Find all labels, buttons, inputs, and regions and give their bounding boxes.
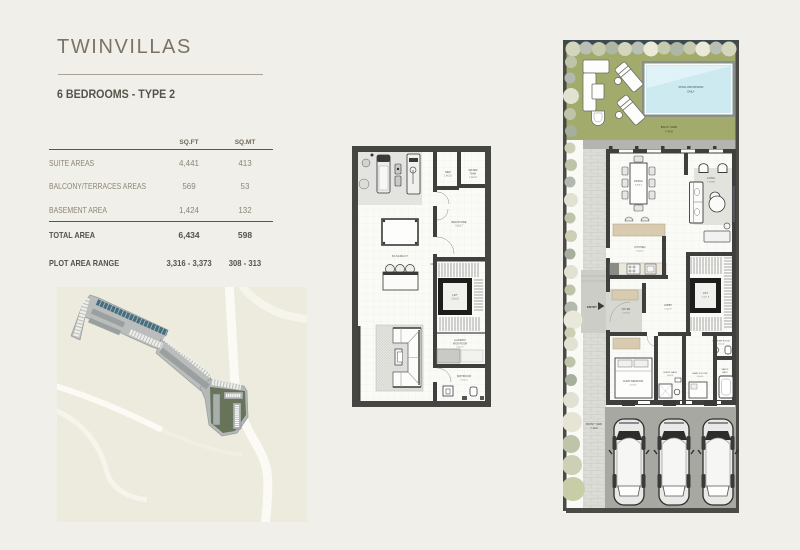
svg-text:BACK YARD: BACK YARD	[661, 125, 677, 129]
svg-text:2.1x2.6: 2.1x2.6	[697, 376, 704, 378]
svg-text:5' WIDE: 5' WIDE	[707, 181, 715, 183]
svg-text:WATER: WATER	[468, 168, 477, 172]
svg-text:UP: UP	[430, 263, 434, 266]
svg-text:7' AVG: 7' AVG	[665, 130, 673, 134]
svg-text:BASEMENT: BASEMENT	[392, 254, 409, 258]
svg-text:ONLY: ONLY	[687, 90, 695, 94]
svg-text:FRONT YARD: FRONT YARD	[586, 422, 603, 426]
svg-text:DINING: DINING	[634, 180, 643, 183]
svg-text:IRON ROOM: IRON ROOM	[453, 342, 467, 345]
svg-text:LIFT: LIFT	[452, 293, 458, 297]
svg-text:MEP: MEP	[445, 170, 451, 174]
svg-text:LIVING: LIVING	[707, 177, 715, 180]
svg-text:7' AVG: 7' AVG	[590, 427, 597, 430]
svg-text:BED/STORE: BED/STORE	[452, 220, 467, 224]
svg-text:GUEST BEDROOM: GUEST BEDROOM	[623, 381, 643, 383]
svg-text:3.8x8.2: 3.8x8.2	[635, 184, 643, 186]
svg-text:BATHROOM: BATHROOM	[457, 375, 471, 378]
svg-text:2.0x1.8: 2.0x1.8	[702, 297, 710, 299]
svg-text:3.6x4.1: 3.6x4.1	[636, 250, 644, 252]
svg-text:1.5x1.5: 1.5x1.5	[718, 344, 725, 346]
svg-text:POOL PROVISION: POOL PROVISION	[679, 85, 704, 89]
svg-text:2.5x2.8: 2.5x2.8	[622, 312, 630, 314]
svg-text:LOBBY: LOBBY	[664, 304, 673, 307]
svg-text:MAID'S: MAID'S	[722, 368, 729, 371]
svg-text:GUEST BATH: GUEST BATH	[663, 371, 677, 374]
svg-text:3.0x1.7: 3.0x1.7	[456, 347, 464, 349]
svg-text:3.7x3.7: 3.7x3.7	[630, 384, 638, 386]
svg-text:BATH: BATH	[722, 371, 728, 374]
svg-text:3.3x3.7: 3.3x3.7	[455, 226, 463, 228]
svg-text:KITCHEN: KITCHEN	[635, 246, 646, 249]
svg-text:MAID'S ROOM: MAID'S ROOM	[693, 372, 708, 375]
svg-text:2.0x1.8: 2.0x1.8	[451, 299, 459, 301]
svg-text:FOYER: FOYER	[622, 308, 631, 311]
svg-text:1.6x2.6: 1.6x2.6	[667, 375, 674, 377]
svg-text:TANK: TANK	[470, 172, 477, 176]
svg-text:1.4x1.0: 1.4x1.0	[444, 176, 452, 178]
svg-text:1.4x1.0: 1.4x1.0	[469, 177, 477, 179]
svg-text:2.5x2.0: 2.5x2.0	[460, 379, 468, 381]
svg-text:LIFT: LIFT	[703, 292, 709, 295]
svg-text:PARKING: PARKING	[665, 505, 676, 508]
svg-text:ENTRY: ENTRY	[587, 305, 597, 309]
svg-text:2.5x2.9: 2.5x2.9	[664, 308, 672, 310]
